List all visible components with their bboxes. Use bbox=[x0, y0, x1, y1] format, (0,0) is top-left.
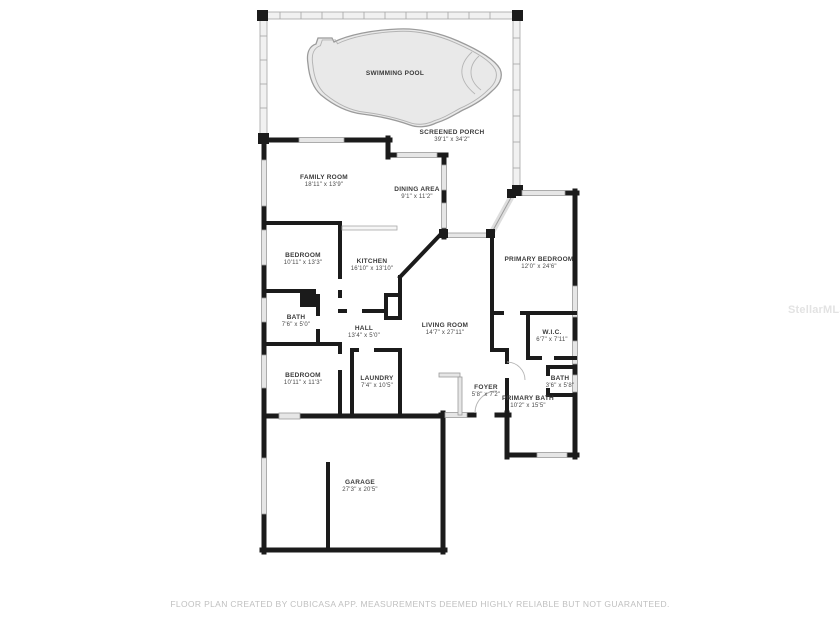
footer-disclaimer: FLOOR PLAN CREATED BY CUBICASA APP. MEAS… bbox=[0, 599, 840, 609]
pool-shape bbox=[307, 29, 501, 127]
floorplan-page: SWIMMING POOL SCREENED PORCH39'1" x 34'2… bbox=[0, 0, 840, 630]
windows bbox=[262, 138, 578, 515]
mls-watermark: StellarMLS bbox=[788, 304, 840, 316]
interior-walls bbox=[264, 223, 575, 550]
floorplan-drawing bbox=[0, 0, 840, 630]
